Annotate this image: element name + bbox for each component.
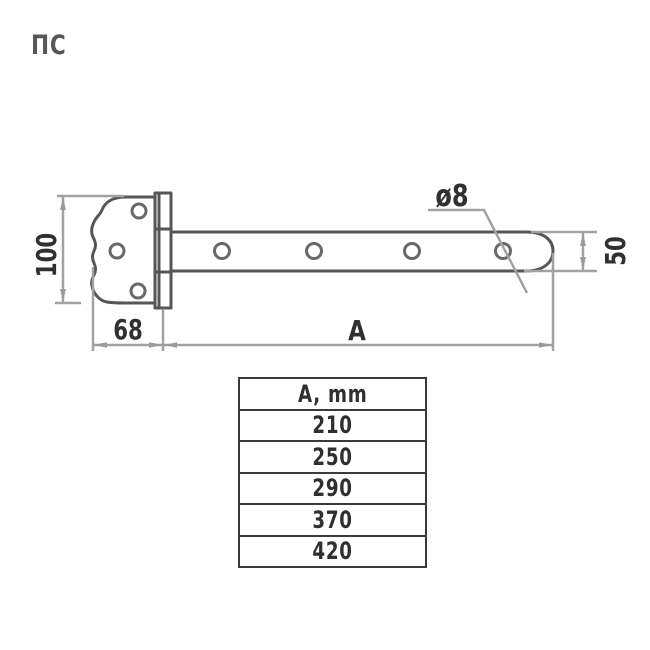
size-table-header-cell: A, mm bbox=[239, 378, 426, 410]
strap-hole-2 bbox=[307, 244, 322, 259]
arrow-100-down bbox=[60, 289, 66, 303]
plate-hole-middle bbox=[110, 244, 124, 258]
strap-hole-3 bbox=[405, 244, 420, 259]
dim-text-plate-width: 68 bbox=[113, 313, 143, 346]
size-value-cell: 250 bbox=[239, 441, 426, 473]
arrow-68-right bbox=[149, 342, 163, 348]
table-row: 290 bbox=[239, 473, 426, 505]
size-table: A, mm 210 250 290 370 420 bbox=[238, 377, 427, 568]
leader-line-hole-diameter bbox=[428, 210, 527, 293]
hinge-barrel bbox=[155, 193, 171, 308]
dim-text-hole-diameter: ø8 bbox=[435, 179, 468, 213]
dim-text-strap-length: A bbox=[348, 315, 366, 348]
plate-hole-bottom bbox=[131, 284, 145, 298]
dim-text-plate-height: 100 bbox=[30, 233, 63, 277]
arrow-50-down bbox=[580, 257, 586, 271]
arrow-68-left bbox=[93, 342, 107, 348]
table-row: 210 bbox=[239, 410, 426, 442]
strap-hole-1 bbox=[215, 244, 230, 259]
size-value-cell: 420 bbox=[239, 536, 426, 568]
arrow-50-up bbox=[580, 232, 586, 246]
table-row: 370 bbox=[239, 504, 426, 536]
size-table-header-row: A, mm bbox=[239, 378, 426, 410]
size-value-cell: 290 bbox=[239, 473, 426, 505]
size-value-cell: 370 bbox=[239, 504, 426, 536]
arrow-A-right bbox=[539, 342, 553, 348]
arrow-A-left bbox=[163, 342, 177, 348]
arrow-100-up bbox=[60, 196, 66, 210]
table-row: 250 bbox=[239, 441, 426, 473]
size-value-cell: 210 bbox=[239, 410, 426, 442]
plate-hole-top bbox=[132, 204, 146, 218]
dim-text-strap-height: 50 bbox=[599, 236, 632, 266]
table-row: 420 bbox=[239, 536, 426, 568]
